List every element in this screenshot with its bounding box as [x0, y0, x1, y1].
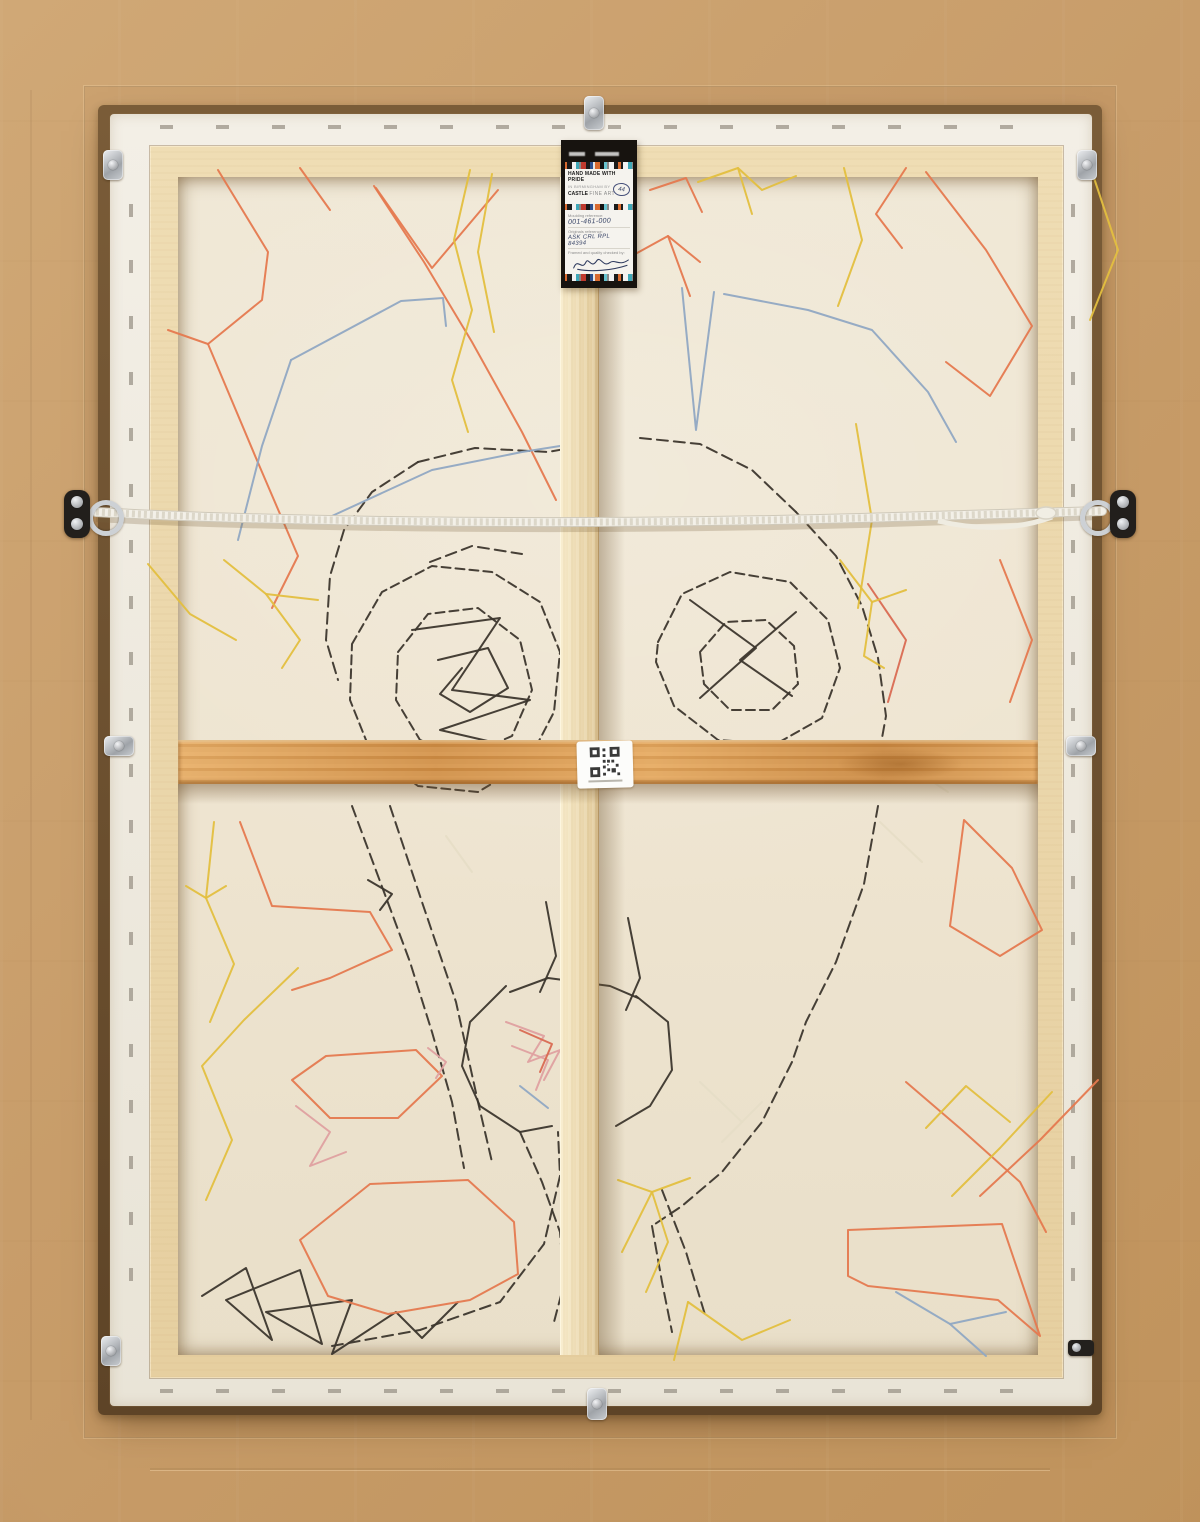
label-line1: HAND MADE WITH PRIDE: [568, 171, 630, 183]
frame-clip-bottom-right: [1068, 1340, 1094, 1356]
d-ring-plate-right: [1110, 490, 1136, 538]
frame-clip-bottom-center: [587, 1388, 607, 1420]
brand-suffix: FINE ART: [589, 191, 615, 197]
d-ring-plate-left: [64, 490, 90, 538]
frame-clip-right-middle: [1066, 736, 1096, 756]
frame-clip-top-left: [103, 150, 123, 180]
signature: [571, 251, 631, 273]
brand-name: CASTLE: [568, 191, 588, 197]
frame-clip-top-center: [584, 96, 604, 130]
originals-reference-value: ASK CRL RPL 84394: [568, 233, 630, 247]
d-ring-left: [88, 500, 124, 536]
screw: [1117, 518, 1129, 530]
label-barcode-strip: [565, 162, 633, 169]
divider: [568, 227, 630, 228]
screw: [71, 496, 83, 508]
frame-clip-bottom-left: [101, 1336, 121, 1366]
label-top-mark: [595, 152, 619, 156]
moulding-reference-value: 001-461-000: [568, 217, 630, 226]
frame-clip-top-right: [1077, 150, 1097, 180]
screw: [71, 518, 83, 530]
framed-canvas-back-photo: HAND MADE WITH PRIDE IN BIRMINGHAM BY CA…: [0, 0, 1200, 1522]
cord-knot: [1036, 507, 1056, 519]
label-reference-sticker: Moulding reference: 001-461-000 Original…: [565, 210, 633, 274]
screw: [1117, 496, 1129, 508]
divider: [568, 248, 630, 249]
label-top-mark: [569, 152, 585, 156]
frame-clip-left-middle: [104, 736, 134, 756]
label-barcode-strip: [565, 274, 633, 281]
label-brand-sticker: HAND MADE WITH PRIDE IN BIRMINGHAM BY CA…: [565, 169, 633, 204]
framers-label: HAND MADE WITH PRIDE IN BIRMINGHAM BY CA…: [561, 140, 637, 288]
